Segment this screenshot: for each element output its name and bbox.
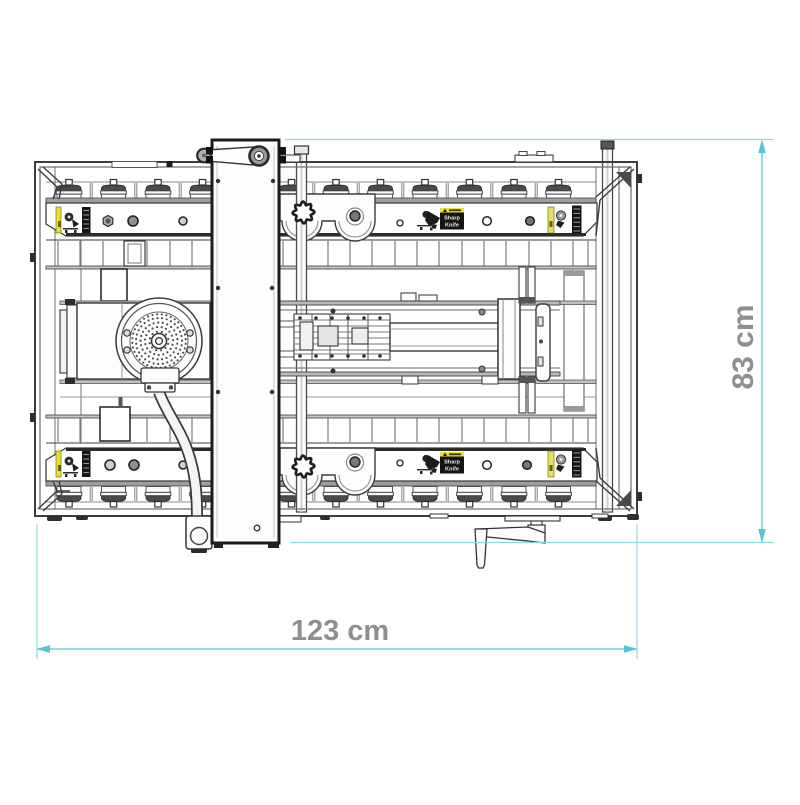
svg-text:Sharp: Sharp: [444, 460, 460, 466]
svg-text:Sharp: Sharp: [444, 216, 460, 222]
svg-text:Knife: Knife: [445, 467, 459, 473]
svg-text:83 cm: 83 cm: [727, 304, 760, 389]
svg-text:123 cm: 123 cm: [291, 615, 389, 647]
svg-text:Knife: Knife: [445, 223, 459, 229]
